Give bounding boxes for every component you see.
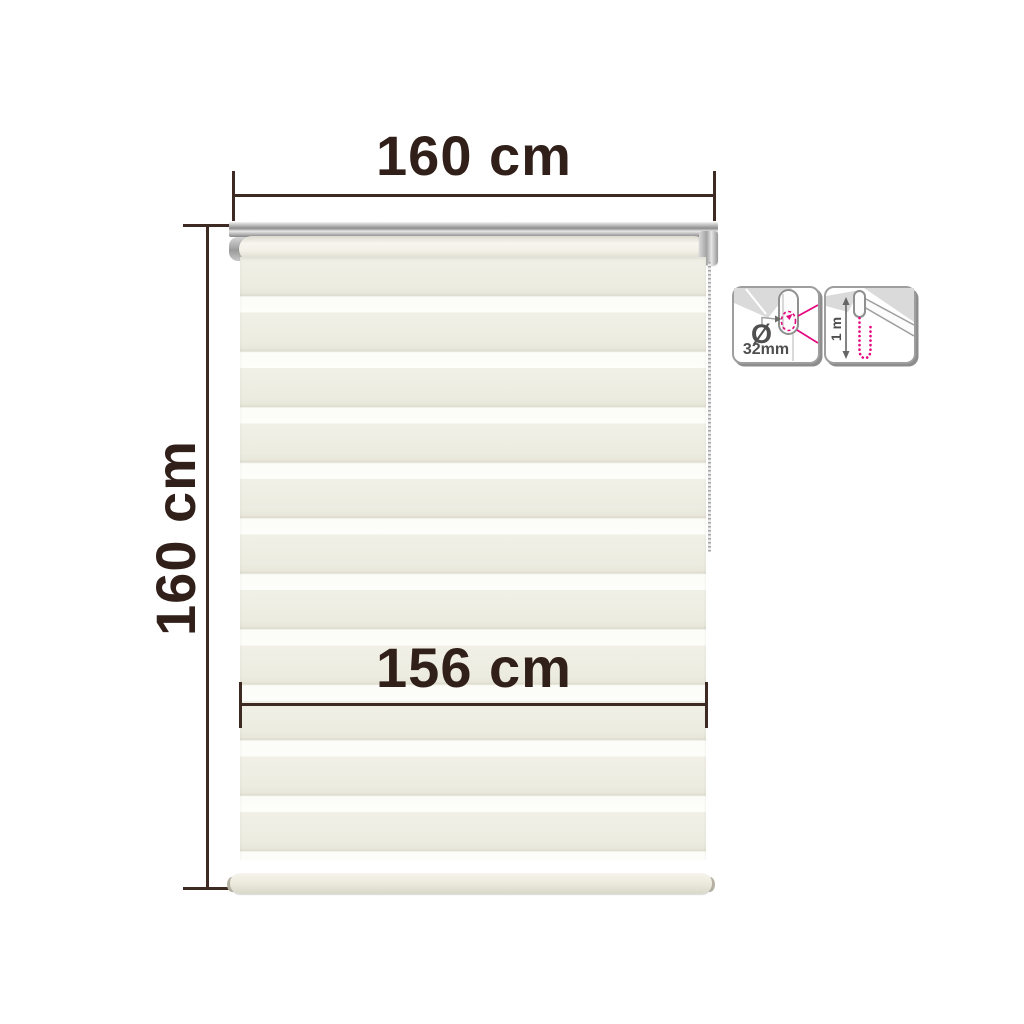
bottom-bar <box>230 873 712 894</box>
tube-diameter-value: 32mm <box>735 342 797 358</box>
fabric-width-tick-right <box>705 682 708 728</box>
bead-chain <box>708 262 711 552</box>
fabric-width-dimension-line <box>240 703 708 706</box>
tube-diameter-badge: Ø 32mm <box>732 286 820 364</box>
width-dimension-tick-left <box>232 171 235 221</box>
fabric-width-dimension-label: 156 cm <box>240 640 708 696</box>
fabric-width-tick-left <box>239 682 242 728</box>
width-dimension-line <box>233 194 715 197</box>
height-dimension-label: 160 cm <box>148 440 204 636</box>
height-dimension-tick-bottom <box>183 887 233 890</box>
roller-blind-dimension-diagram: 160 cm 160 cm 156 cm Ø <box>0 0 1024 1024</box>
chain-length-badge: 1 m <box>824 286 916 364</box>
chain-length-value: 1 m <box>829 309 843 349</box>
height-dimension-tick-top <box>183 224 233 227</box>
headrail <box>229 222 718 237</box>
width-dimension-label: 160 cm <box>233 128 715 184</box>
width-dimension-tick-right <box>713 171 716 221</box>
height-dimension-line <box>206 226 209 889</box>
zebra-fabric-panel <box>240 257 706 860</box>
